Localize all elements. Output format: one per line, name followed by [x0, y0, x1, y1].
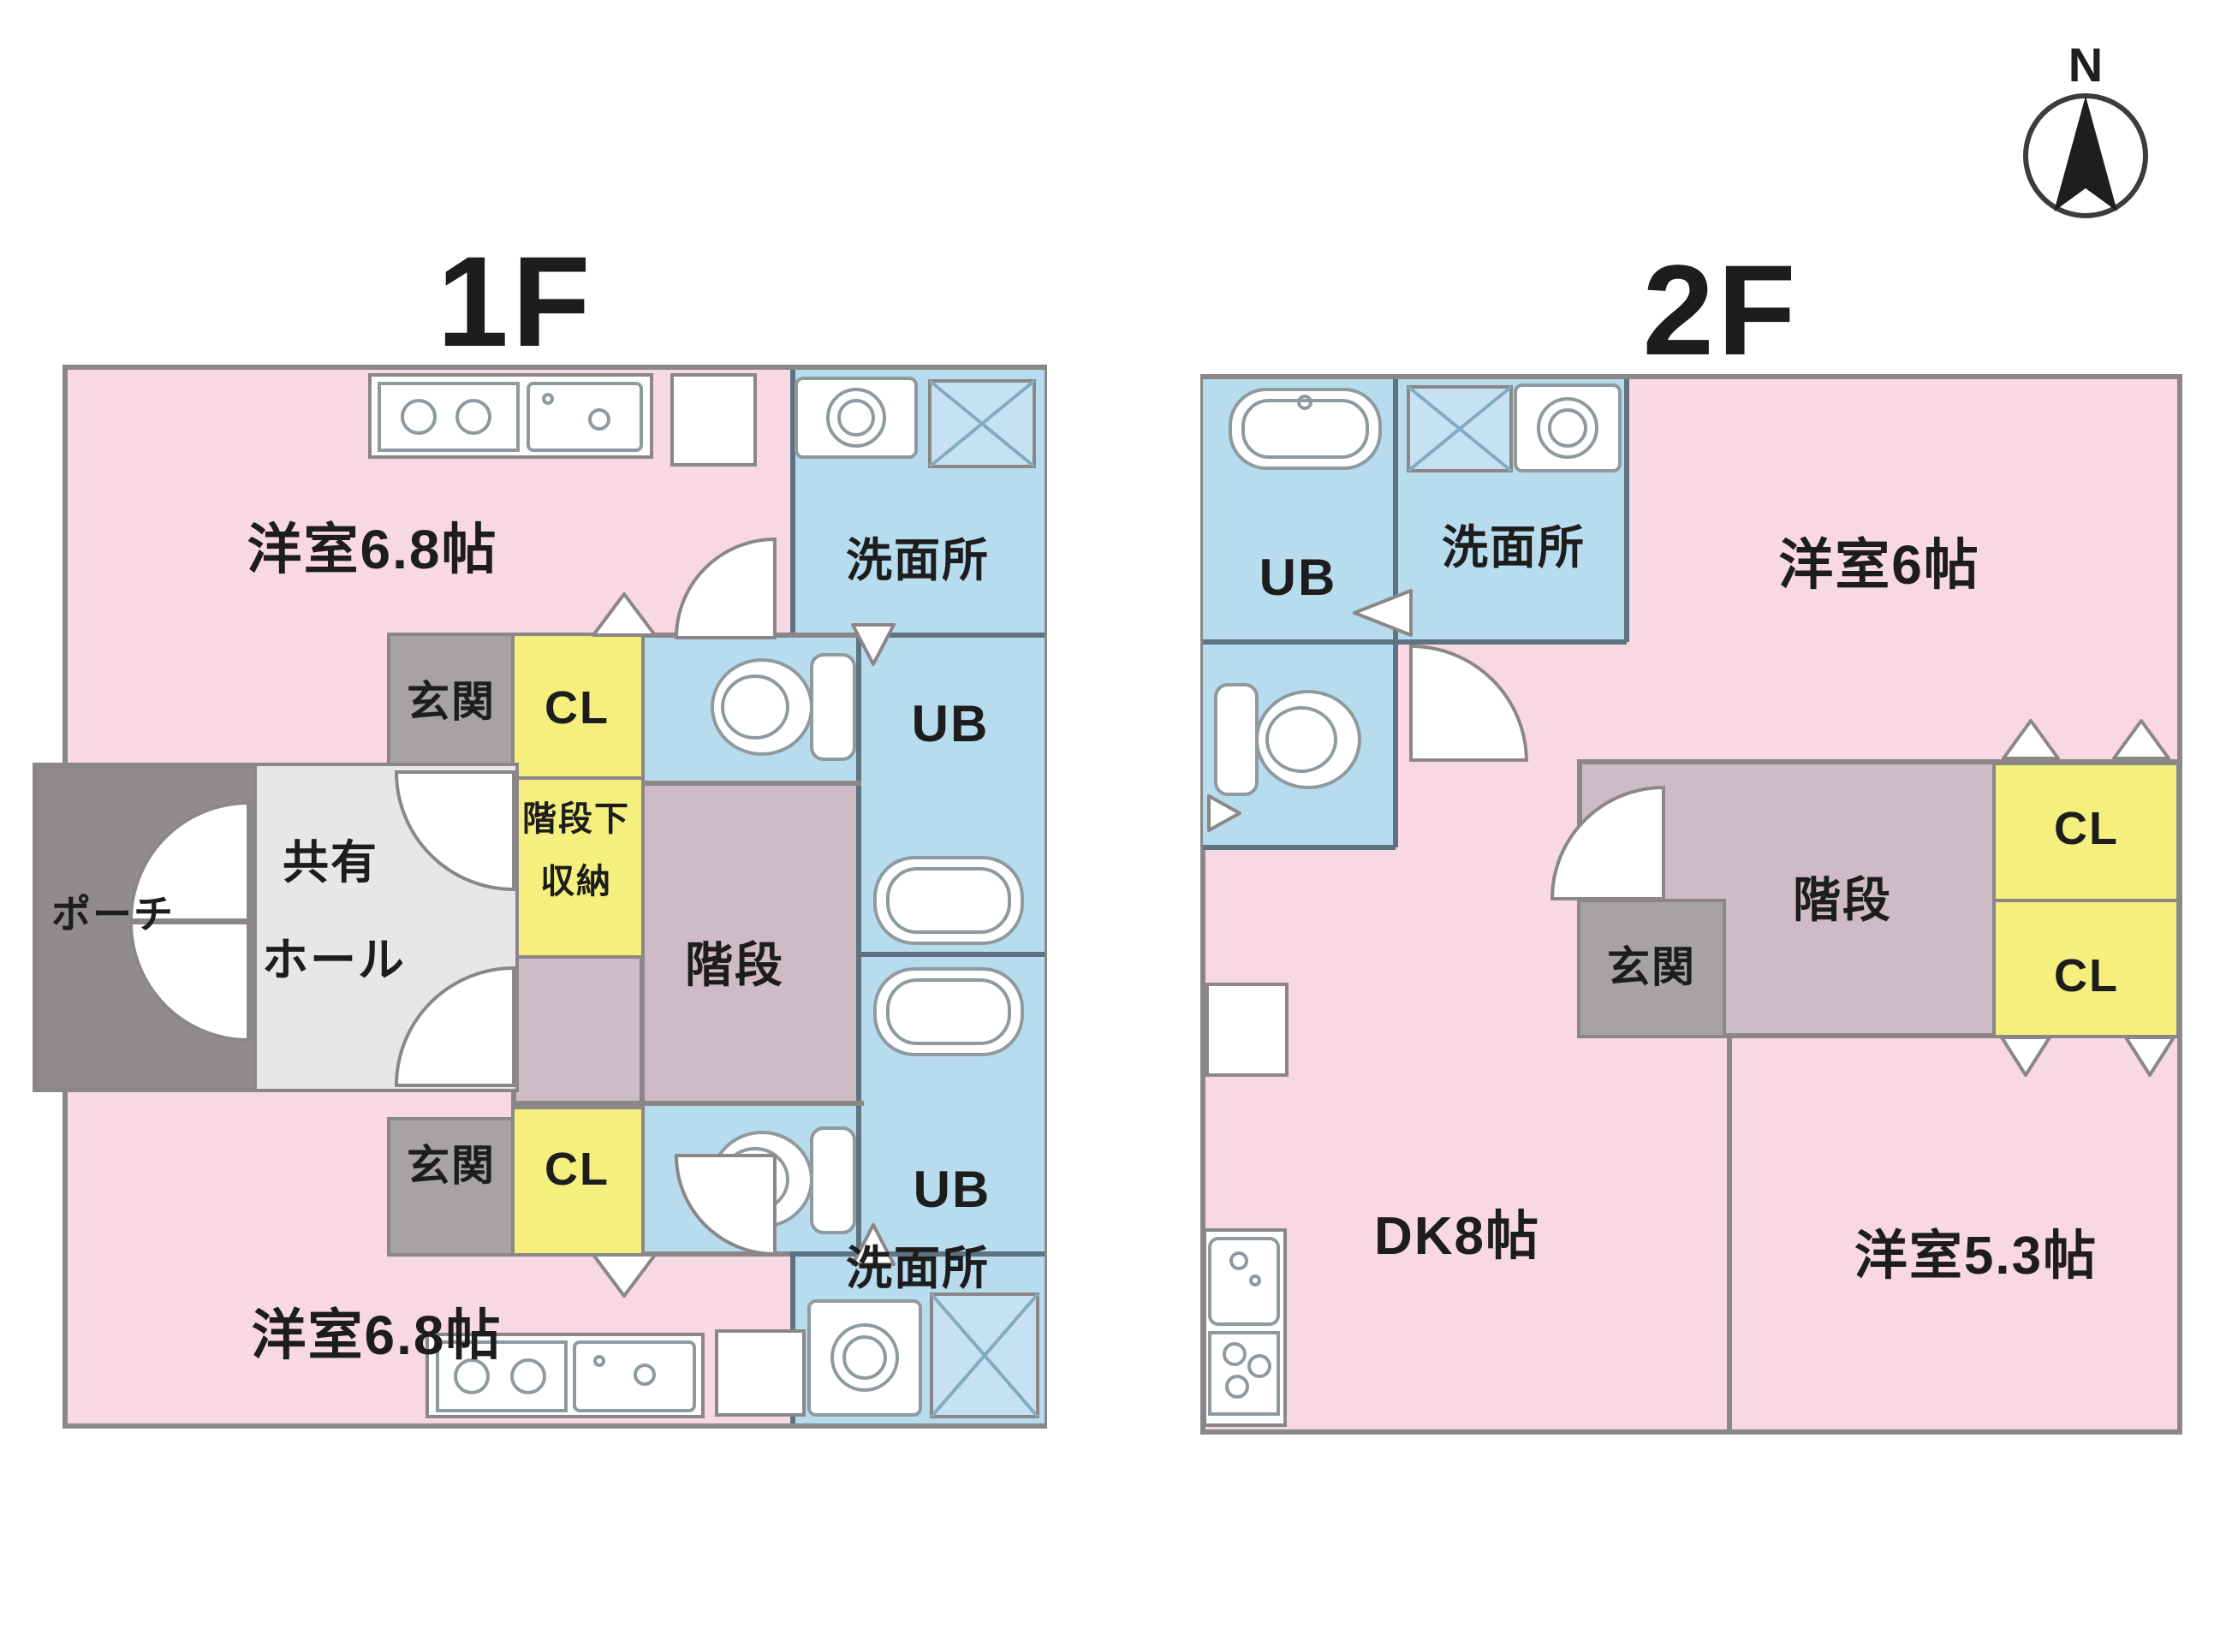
- f2-stairs-label: 階段: [1793, 877, 1892, 924]
- f2-wall-niche: [1205, 983, 1289, 1077]
- f2-room53-label: 洋室5.3帖: [1854, 1230, 2098, 1283]
- f1-shared-hall: [253, 763, 519, 1092]
- f1-cl-top-label: CL: [545, 685, 610, 731]
- wall: [1624, 379, 1629, 642]
- f1-genkan-top-label: 玄関: [407, 680, 496, 723]
- wall: [1727, 1036, 1732, 1429]
- f2-wash-label: 洗面所: [1442, 525, 1586, 571]
- wall: [1203, 845, 1396, 850]
- compass-icon: N: [2026, 38, 2146, 216]
- f2-dk-label: DK8帖: [1374, 1210, 1540, 1263]
- f1-understairs-label-line2: 収納: [540, 865, 612, 899]
- compass-north-label: N: [2068, 38, 2103, 92]
- f1-refrigerator-space-top: [670, 373, 757, 466]
- floor2-title: 2F: [1642, 246, 1799, 374]
- f1-understairs-label-line1: 階段下: [522, 802, 630, 836]
- f1-toilet-room-bottom: [640, 1103, 859, 1254]
- f1-porch-label: ポーチ: [51, 894, 175, 934]
- f2-toilet-room: [1203, 642, 1398, 847]
- wall: [1203, 639, 1627, 645]
- floor1-title: 1F: [437, 237, 593, 365]
- f2-cl-lower-label: CL: [2054, 953, 2119, 999]
- wall: [856, 952, 1045, 957]
- f1-washroom-top: [790, 370, 1045, 635]
- f1-stairs-label: 階段: [685, 942, 784, 989]
- f1-genkan-bottom-label: 玄関: [407, 1144, 496, 1187]
- f1-hall-label-line1: 共有: [283, 840, 378, 886]
- f1-room-top-label: 洋室6.8帖: [247, 522, 498, 577]
- floorplan-page: { "palette": { "pink": "#f8d8e2", "blue"…: [0, 0, 2226, 1652]
- f1-wash-top-label: 洗面所: [846, 538, 990, 584]
- f2-washroom: [1393, 379, 1629, 642]
- wall: [1393, 379, 1398, 847]
- f1-hall-label-line2: ホール: [262, 937, 406, 983]
- wall: [856, 635, 861, 1254]
- f2-kitchen-strip: [1203, 1228, 1287, 1427]
- f1-stairs-landing: [511, 956, 645, 1106]
- f1-wash-bottom-label: 洗面所: [846, 1245, 990, 1292]
- f1-room-bottom-label: 洋室6.8帖: [252, 1308, 503, 1363]
- wall: [640, 781, 861, 786]
- f1-ub-bottom-label: UB: [914, 1164, 991, 1215]
- f1-kitchen-counter-top: [368, 373, 653, 459]
- f1-toilet-room-top: [640, 635, 859, 786]
- f1-cl-bottom-label: CL: [545, 1146, 610, 1192]
- f2-ub-label: UB: [1259, 552, 1337, 603]
- f1-refrigerator-space-bottom: [715, 1329, 806, 1417]
- f2-genkan-label: 玄関: [1607, 946, 1696, 989]
- f1-ub-top: [856, 635, 1045, 954]
- wall: [790, 370, 795, 635]
- f2-cl-upper-label: CL: [2054, 805, 2119, 852]
- f2-room6-label: 洋室6帖: [1778, 538, 1980, 592]
- f1-ub-top-label: UB: [912, 698, 990, 750]
